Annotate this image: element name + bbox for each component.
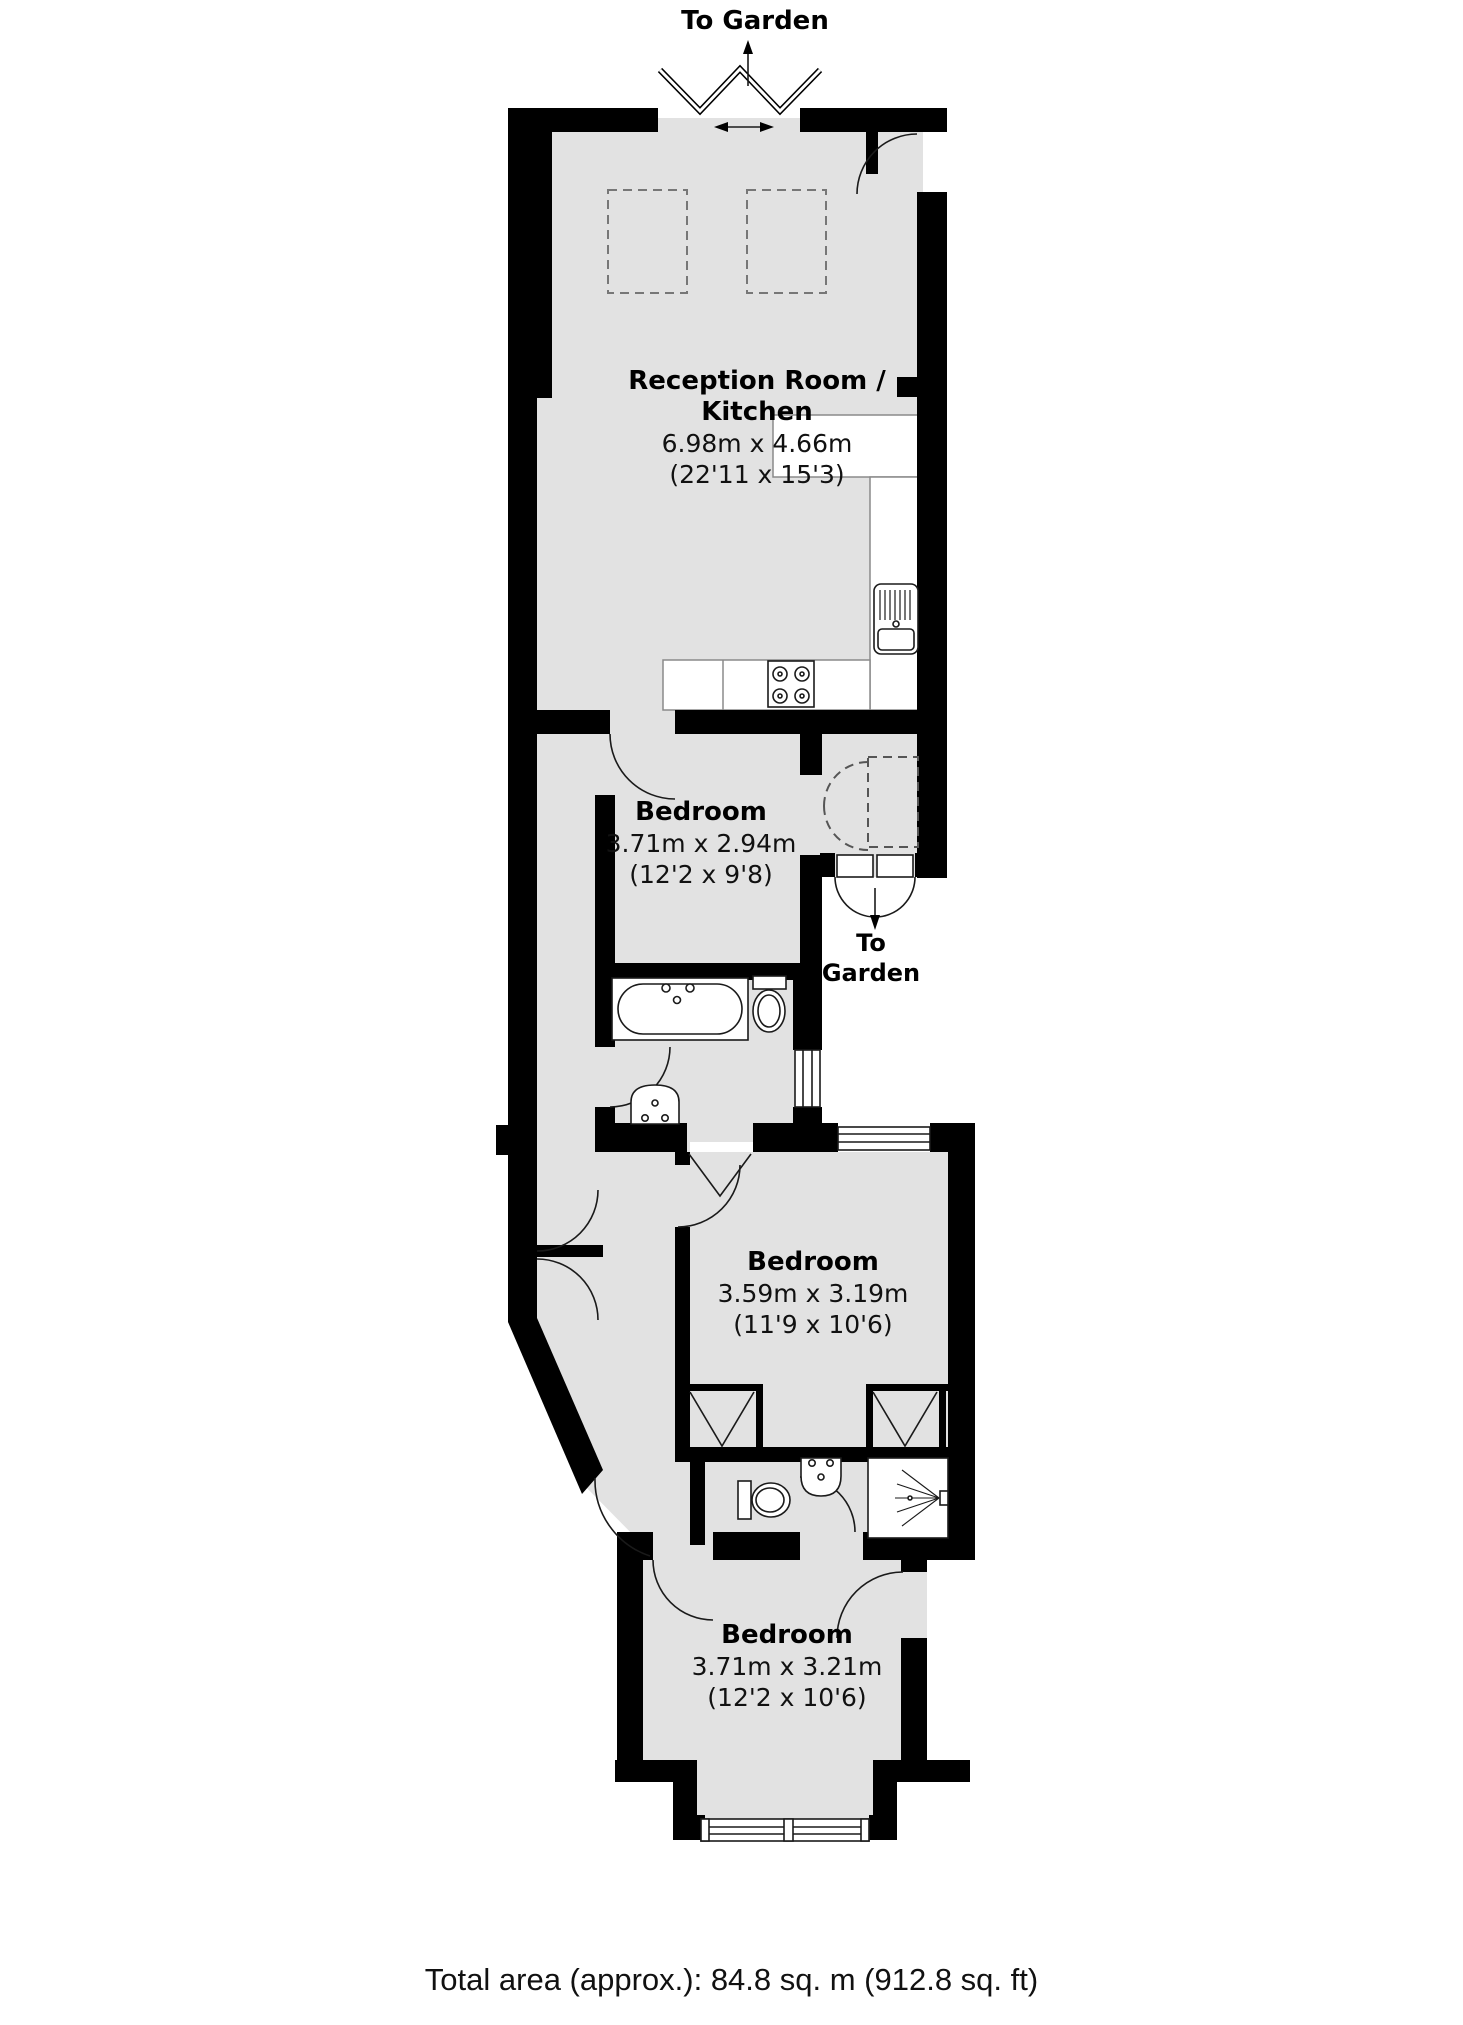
bedroom1-label: Bedroom 3.71m x 2.94m (12'2 x 9'8) xyxy=(606,797,797,890)
room-dim-imperial: (11'9 x 10'6) xyxy=(718,1309,909,1340)
to-garden-line1: To xyxy=(822,928,920,958)
to-garden-mid-label: To Garden xyxy=(822,928,920,988)
bathtub-icon xyxy=(612,978,748,1040)
bedroom3-label: Bedroom 3.71m x 3.21m (12'2 x 10'6) xyxy=(692,1620,883,1713)
room-dim-metric: 3.71m x 3.21m xyxy=(692,1651,883,1682)
bedroom2-window xyxy=(838,1127,930,1150)
room-name: Bedroom xyxy=(606,797,797,828)
floorplan-page: To Garden Reception Room / Kitchen 6.98m… xyxy=(0,0,1463,2025)
total-area-text: Total area (approx.): 84.8 sq. m (912.8 … xyxy=(0,1962,1463,1998)
basin-icon-bathroom xyxy=(631,1085,679,1124)
french-door-right-arc xyxy=(875,877,915,917)
room-dim-imperial: (12'2 x 10'6) xyxy=(692,1682,883,1713)
hob-icon xyxy=(768,661,814,707)
toilet-icon-bathroom xyxy=(753,976,786,1032)
bathroom-window xyxy=(795,1050,820,1107)
wardrobe-nook2-floor xyxy=(866,1388,948,1448)
floorplan-drawing xyxy=(0,0,1463,2025)
room-dim-metric: 3.59m x 3.19m xyxy=(718,1278,909,1309)
garden-bifold-doors xyxy=(660,69,820,111)
garden-lobby-floor xyxy=(820,712,920,877)
sink-icon xyxy=(874,584,918,654)
room-dim-imperial: (22'11 x 15'3) xyxy=(628,459,885,490)
room-dim-imperial: (12'2 x 9'8) xyxy=(606,859,797,890)
bedroom3-lower-floor xyxy=(697,1760,873,1815)
to-garden-line2: Garden xyxy=(822,958,920,988)
hallway-floor xyxy=(528,1142,690,1545)
to-garden-top-label: To Garden xyxy=(681,6,829,36)
room-dim-metric: 6.98m x 4.66m xyxy=(628,428,885,459)
reception-room-label: Reception Room / Kitchen 6.98m x 4.66m (… xyxy=(628,366,885,490)
room-name: Bedroom xyxy=(718,1247,909,1278)
basin-icon-showerroom xyxy=(801,1458,841,1496)
room-dim-metric: 3.71m x 2.94m xyxy=(606,828,797,859)
room-name-line1: Reception Room / xyxy=(628,366,885,397)
bay-window xyxy=(701,1819,869,1841)
room-name-line2: Kitchen xyxy=(628,397,885,428)
shower-icon xyxy=(868,1458,948,1538)
bedroom2-label: Bedroom 3.59m x 3.19m (11'9 x 10'6) xyxy=(718,1247,909,1340)
room-name: Bedroom xyxy=(692,1620,883,1651)
french-door-left-arc xyxy=(835,877,875,917)
toilet-icon-showerroom xyxy=(738,1481,790,1519)
garden-down-arrow-icon xyxy=(870,888,880,930)
